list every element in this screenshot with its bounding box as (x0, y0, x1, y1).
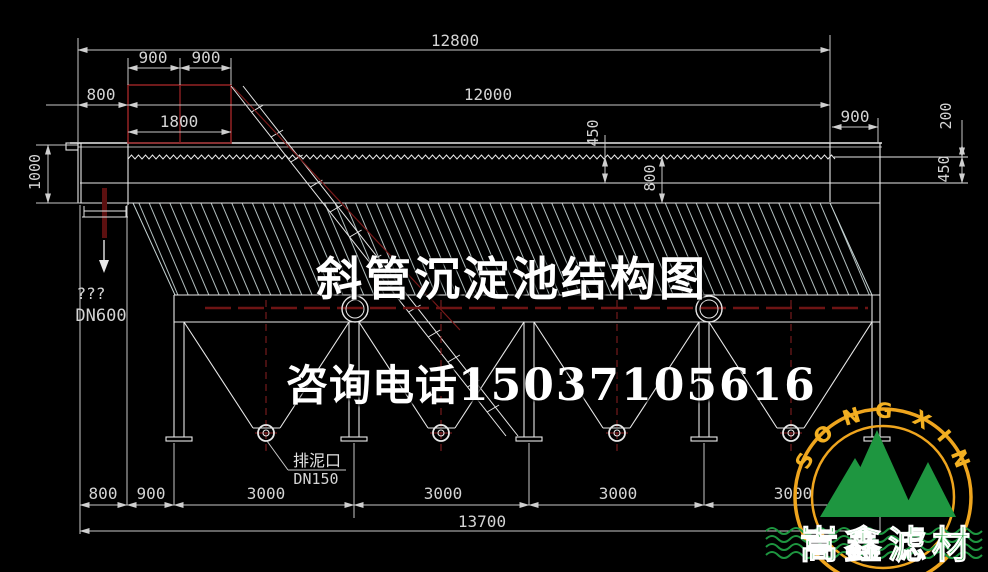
cad-drawing-viewport: 12800 900 900 800 12000 1800 900 200 450… (0, 0, 988, 572)
company-logo-stamp: SONG XIN 嵩鑫滤材 (0, 0, 988, 572)
logo-company-name: 嵩鑫滤材 (800, 522, 976, 567)
logo-arc-text-xin: XIN (909, 405, 980, 483)
